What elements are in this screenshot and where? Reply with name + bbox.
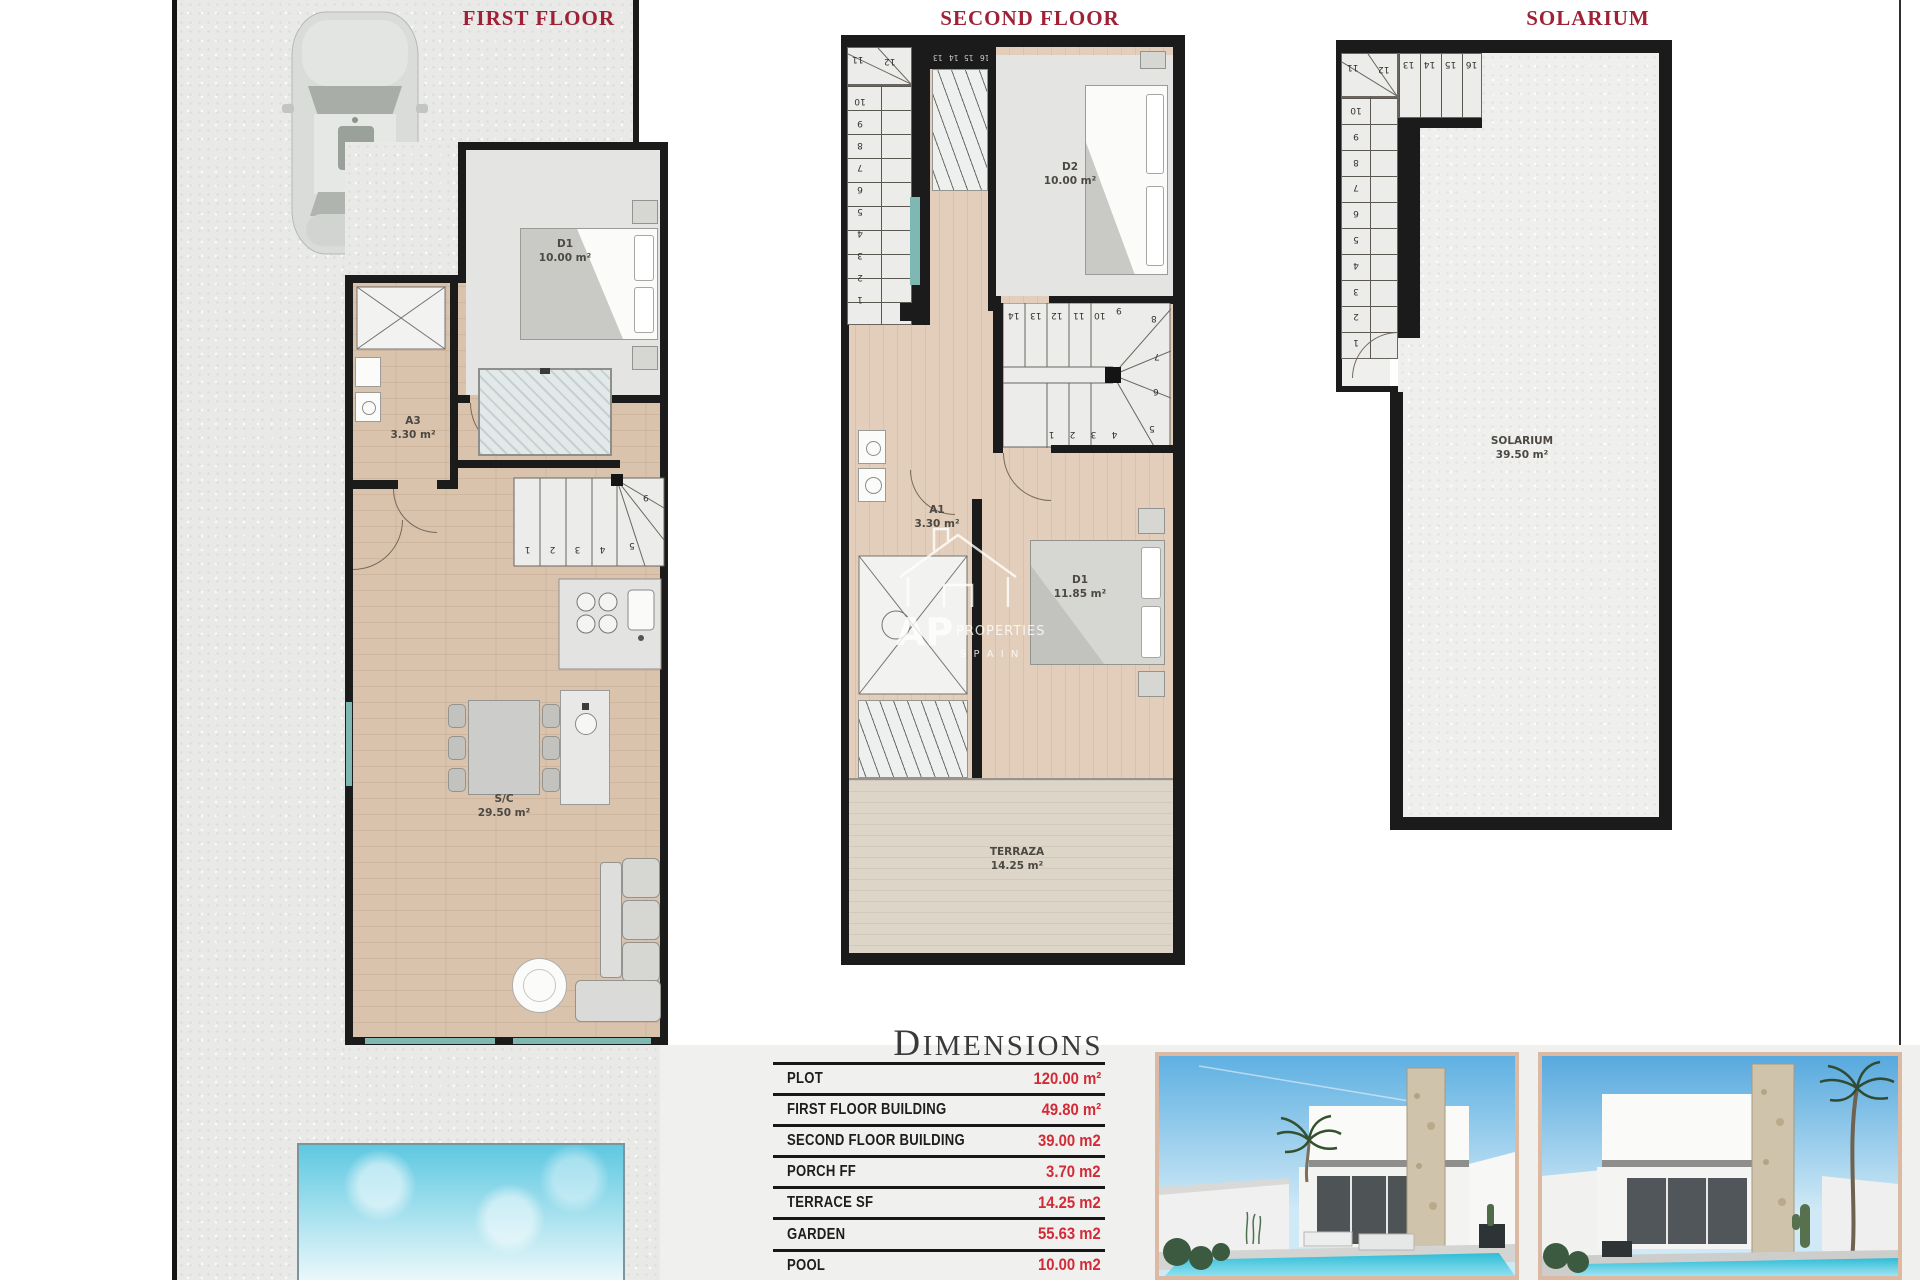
wall (450, 283, 458, 480)
stair-step-number: 12 (884, 56, 895, 66)
staircase-winder: 1413121110 1234 9 8 7 6 5 (1003, 303, 1171, 448)
villa-photo-2 (1538, 1052, 1902, 1280)
watermark-ap: AP (896, 610, 953, 654)
solarium-title: SOLARIUM (1488, 6, 1688, 31)
window (346, 702, 352, 786)
dim-label: POOL (787, 1257, 825, 1275)
room-label-terraza: TERRAZA 14.25 m² (975, 845, 1059, 875)
kitchen-island (560, 690, 610, 805)
room-label-sc: S/C 29.50 m² (462, 790, 546, 824)
table-row: POOL 10.00 m2 (773, 1249, 1105, 1280)
wardrobe-hangers (932, 69, 988, 191)
room-label-a3: A3 3.30 m² (373, 414, 453, 444)
wall (458, 142, 668, 150)
chair (448, 736, 466, 760)
stair-step-numbers: 12345678910 (1341, 97, 1371, 355)
stair-step-number: 1 (1041, 423, 1062, 445)
bed-pillow (1141, 606, 1161, 658)
island-tap (582, 703, 589, 710)
winder-lines (1342, 54, 1397, 96)
wall (1173, 35, 1185, 965)
wall (1390, 392, 1403, 817)
chair (542, 768, 560, 792)
dim-label: GARDEN (787, 1226, 845, 1244)
stair-step-number: 3 (1083, 423, 1104, 445)
wall (1398, 118, 1482, 128)
villa-render-scene (1542, 1056, 1898, 1276)
stair-step-number: 1 (845, 288, 875, 310)
stair-step-number: 14 (1003, 305, 1025, 325)
room-area: 29.50 m² (478, 807, 530, 821)
wall (1659, 40, 1672, 830)
wall (437, 480, 458, 489)
room-area: 3.30 m² (390, 429, 435, 443)
stair-step-number: 7 (845, 156, 875, 178)
wall (1390, 817, 1672, 830)
chair (542, 704, 560, 728)
nightstand (632, 346, 658, 370)
table-row: TERRACE SF 14.25 m2 (773, 1186, 1105, 1217)
wall (1051, 445, 1173, 453)
stair-step-number: 6 (1153, 386, 1159, 396)
stair-step-number: 10 (1089, 305, 1111, 325)
stair-winder: 11 12 (847, 47, 912, 85)
room-area: 10.00 m² (1044, 175, 1096, 189)
stair-step-numbers: 1234 (515, 536, 615, 562)
dim-value: 49.80 m² (1042, 1101, 1101, 1120)
basin-bowl (866, 441, 881, 456)
bathtub (478, 368, 612, 456)
wall (458, 142, 466, 283)
wall (841, 953, 1185, 965)
round-chair (512, 958, 567, 1013)
table-row: FIRST FLOOR BUILDING 49.80 m² (773, 1093, 1105, 1124)
table-row: PORCH FF 3.70 m2 (773, 1155, 1105, 1186)
stair-step-number: 9 (643, 492, 649, 502)
stair-step-number: 6 (1341, 200, 1371, 226)
stair-step-number: 5 (845, 200, 875, 222)
stair-step-number: 12 (1046, 305, 1068, 325)
room-name: D1 (1072, 574, 1088, 588)
dim-value: 14.25 m2 (1038, 1194, 1101, 1213)
stair-step-number: 1 (515, 536, 540, 562)
wall (345, 275, 353, 1045)
watermark-logo: AP PROPERTIES S P A I N (870, 515, 1070, 685)
stair-step-number: 12 (1378, 64, 1389, 74)
dim-label: PLOT (787, 1070, 823, 1088)
wall (345, 275, 458, 283)
wall (900, 303, 930, 321)
door-arc (1003, 453, 1051, 501)
stair-step-number: 9 (845, 112, 875, 134)
stair-step-number: 10 (1341, 97, 1371, 123)
sofa-cushion (622, 942, 660, 982)
stair-step-number: 13 (1025, 305, 1047, 325)
shower-tray (356, 286, 446, 350)
stair-step-number: 14 (946, 48, 962, 67)
stair-step-number: 8 (1151, 313, 1157, 323)
watermark-spain: S P A I N (960, 649, 1020, 660)
room-area: 14.25 m² (991, 860, 1043, 874)
dim-label: SECOND FLOOR BUILDING (787, 1132, 965, 1150)
stair-step-number: 15 (961, 48, 977, 67)
washer-drum (865, 477, 882, 494)
window (513, 1038, 651, 1044)
stair-step-number: 11 (1347, 62, 1358, 72)
dim-value: 39.00 m2 (1038, 1132, 1101, 1151)
stair-step-number: 3 (1341, 278, 1371, 304)
stair-step-number: 4 (1104, 423, 1125, 445)
terrace-threshold (849, 778, 1173, 780)
dimensions-rows: PLOT 120.00 m² FIRST FLOOR BUILDING 49.8… (773, 1062, 1105, 1280)
nightstand (1140, 51, 1166, 69)
wall (1398, 128, 1420, 338)
table-row: PLOT 120.00 m² (773, 1062, 1105, 1093)
bed-pillow (634, 235, 654, 281)
wall (458, 395, 470, 403)
wall (1336, 40, 1672, 53)
room-name: TERRAZA (990, 846, 1044, 860)
washing-machine (858, 468, 886, 502)
room-name: SOLARIUM (1491, 435, 1553, 449)
room-name: A3 (405, 415, 420, 429)
table-row: GARDEN 55.63 m2 (773, 1217, 1105, 1248)
bed-pillow (1146, 94, 1164, 174)
stair-step-numbers: 13141516 (1398, 55, 1482, 73)
stair-step-number: 9 (1116, 305, 1122, 315)
stair-step-number: 5 (1149, 423, 1155, 433)
dim-label: PORCH FF (787, 1163, 856, 1181)
first-floor-title: FIRST FLOOR (415, 6, 615, 31)
staircase-first-floor: 1234 5 9 (513, 468, 665, 568)
stair-step-number: 2 (1062, 423, 1083, 445)
bed-pillow (634, 287, 654, 333)
stair-step-number: 7 (1154, 351, 1160, 361)
stair-step-number: 6 (845, 178, 875, 200)
chair (448, 768, 466, 792)
wall (993, 445, 1003, 453)
washbasin (858, 430, 886, 464)
stair-step-number: 7 (1341, 174, 1371, 200)
garden-strip-left (177, 145, 345, 1280)
stair-step-number: 11 (1068, 305, 1090, 325)
nightstand (1138, 671, 1165, 697)
sheet-border-right (1899, 0, 1901, 1045)
bed-pillow (1141, 547, 1161, 599)
pool-water-texture (299, 1145, 623, 1280)
stair-step-numbers: 1413121110 (1003, 305, 1111, 325)
stair-step-number: 4 (1341, 252, 1371, 278)
stair-step-number: 3 (845, 244, 875, 266)
stair-divider (881, 85, 882, 325)
watermark-properties: PROPERTIES (956, 624, 1046, 639)
sofa-chaise (575, 980, 661, 1022)
nightstand (632, 200, 658, 224)
sofa-seat (600, 862, 622, 978)
fence-wall (633, 0, 639, 145)
bed-pillow (1146, 186, 1164, 266)
stair-step-number: 8 (1341, 149, 1371, 175)
stair-step-number: 13 (1398, 55, 1419, 73)
driveway-notch (345, 142, 458, 275)
dimensions-table: DIMENSIONS PLOT 120.00 m² FIRST FLOOR BU… (773, 1022, 1105, 1280)
stair-step-number: 13 (930, 48, 946, 67)
stair-step-number: 11 (852, 54, 863, 64)
wall (450, 460, 620, 468)
dimensions-title: DIMENSIONS (773, 1022, 1105, 1062)
villa-render-scene (1159, 1056, 1515, 1276)
room-label-d1: D1 10.00 m² (525, 237, 605, 267)
dining-table (468, 700, 540, 795)
room-label-solarium: SOLARIUM 39.50 m² (1480, 432, 1564, 466)
stair-step-number: 14 (1419, 55, 1440, 73)
stair-step-numbers: 1234 (1041, 423, 1125, 445)
second-floor-plan: 11 12 12345678910 13141516 D2 10.00 m² (841, 35, 1185, 965)
room-name: S/C (494, 793, 513, 807)
chair (542, 736, 560, 760)
stair-step-number: 15 (1440, 55, 1461, 73)
stair-step-numbers: 13141516 (930, 48, 992, 67)
stair-step-number: 4 (590, 536, 615, 562)
room-area: 39.50 m² (1496, 449, 1548, 463)
stair-step-number: 9 (1341, 123, 1371, 149)
dim-label: TERRACE SF (787, 1194, 873, 1212)
dim-value: 10.00 m2 (1038, 1256, 1101, 1275)
wall (353, 480, 398, 489)
kitchen-counter (558, 578, 662, 670)
wall (988, 47, 996, 311)
dim-value: 3.70 m2 (1047, 1163, 1101, 1182)
room-area: 10.00 m² (539, 252, 591, 266)
stair-step-number: 3 (565, 536, 590, 562)
dim-value: 55.63 m2 (1038, 1225, 1101, 1244)
stair-step-number: 16 (1461, 55, 1482, 73)
wall (841, 35, 1185, 47)
stair-step-number: 8 (845, 134, 875, 156)
stair-winder: 11 12 (1341, 53, 1398, 97)
wall (993, 303, 1003, 448)
solarium-plan: 13141516 11 12 12345678910 SOLARIUM 39.5… (1336, 40, 1672, 830)
table-row: SECOND FLOOR BUILDING 39.00 m2 (773, 1124, 1105, 1155)
stair-step-numbers: 12345678910 (845, 90, 875, 310)
second-floor-title: SECOND FLOOR (930, 6, 1130, 31)
island-sink (575, 713, 597, 735)
toilet (355, 357, 381, 387)
sofa-cushion (622, 858, 660, 898)
stair-step-number: 2 (845, 266, 875, 288)
stair-step-number: 5 (1341, 226, 1371, 252)
wardrobe-hangers (858, 700, 968, 778)
room-name: D2 (1062, 161, 1078, 175)
stair-step-number: 2 (540, 536, 565, 562)
nightstand (1138, 508, 1165, 534)
room-label-d2: D2 10.00 m² (1030, 160, 1110, 190)
swimming-pool (297, 1143, 625, 1280)
stair-step-number: 5 (629, 540, 635, 550)
first-floor-plan: 1234 5 9 (345, 142, 668, 1045)
sofa-cushion (622, 900, 660, 940)
round-chair-inner (523, 969, 556, 1002)
bathtub-faucet (540, 368, 550, 374)
stair-step-number: 2 (1341, 303, 1371, 329)
glass-panel (910, 197, 920, 285)
basin-bowl (362, 401, 376, 415)
stair-step-number: 4 (845, 222, 875, 244)
floorplan-sheet: FIRST FLOOR SECOND FLOOR SOLARIUM (0, 0, 1920, 1280)
dim-label: FIRST FLOOR BUILDING (787, 1101, 946, 1119)
stair-step-number: 10 (845, 90, 875, 112)
room-name: D1 (557, 238, 573, 252)
villa-photo-1 (1155, 1052, 1519, 1280)
door-arc (353, 520, 403, 570)
wall (1336, 386, 1398, 392)
dim-value: 120.00 m² (1033, 1070, 1101, 1089)
chair (448, 704, 466, 728)
window (365, 1038, 495, 1044)
